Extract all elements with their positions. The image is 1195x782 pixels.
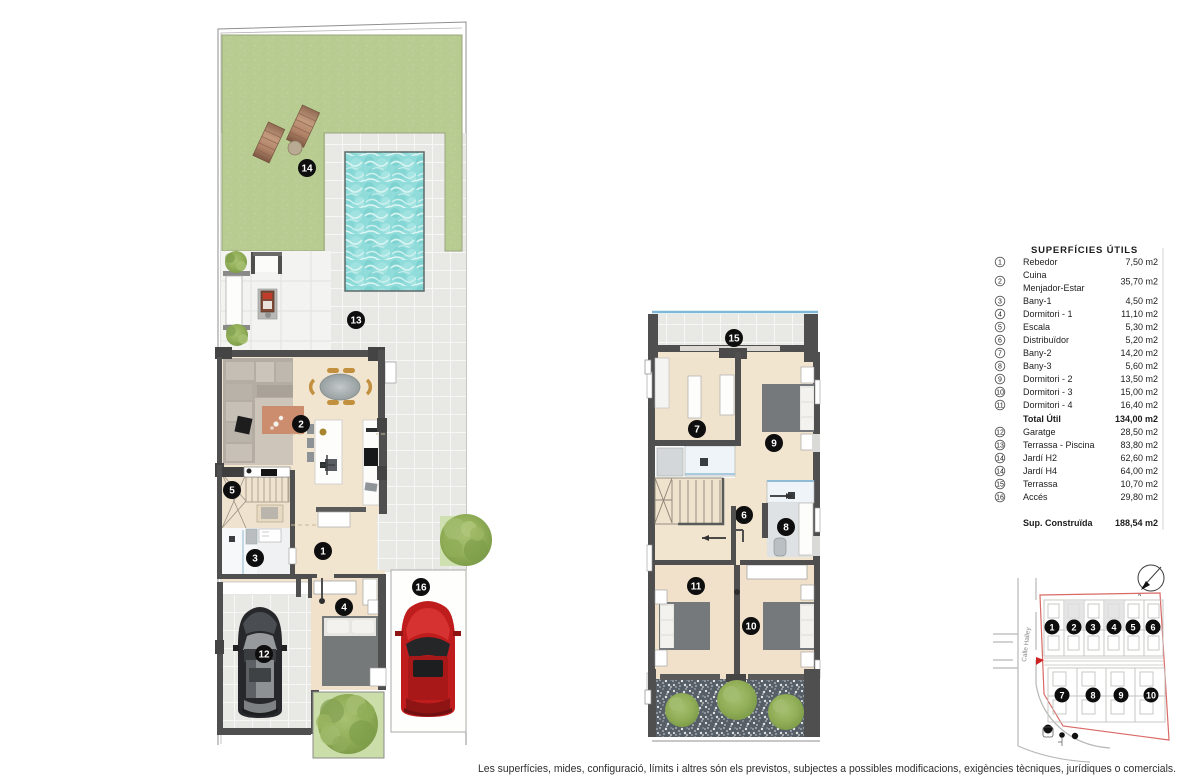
svg-text:Jardí H4: Jardí H4 <box>1023 466 1057 476</box>
svg-text:Menjador-Estar: Menjador-Estar <box>1023 283 1085 293</box>
svg-text:3: 3 <box>252 554 258 565</box>
svg-text:3: 3 <box>998 299 1002 306</box>
svg-text:7: 7 <box>998 351 1002 358</box>
svg-text:5,60 m2: 5,60 m2 <box>1125 361 1158 371</box>
svg-text:SUPERFÍCIES ÚTILS: SUPERFÍCIES ÚTILS <box>1031 244 1138 256</box>
svg-text:9: 9 <box>998 377 1002 384</box>
svg-text:Dormitori - 2: Dormitori - 2 <box>1023 374 1073 384</box>
svg-text:Jardí H2: Jardí H2 <box>1023 453 1057 463</box>
svg-text:14: 14 <box>996 469 1004 476</box>
svg-text:Total Útil: Total Útil <box>1023 413 1061 424</box>
svg-text:1: 1 <box>998 260 1002 267</box>
svg-text:11: 11 <box>691 582 702 593</box>
svg-text:64,00 m2: 64,00 m2 <box>1120 466 1158 476</box>
svg-text:28,50 m2: 28,50 m2 <box>1120 427 1158 437</box>
svg-text:Dormitori - 4: Dormitori - 4 <box>1023 400 1073 410</box>
svg-text:15,00 m2: 15,00 m2 <box>1120 387 1158 397</box>
svg-text:4: 4 <box>998 312 1002 319</box>
svg-text:Cuina: Cuina <box>1023 270 1047 280</box>
svg-text:15: 15 <box>996 482 1004 489</box>
svg-text:1: 1 <box>1049 623 1054 633</box>
svg-text:5,20 m2: 5,20 m2 <box>1125 335 1158 345</box>
svg-text:4: 4 <box>1111 623 1116 633</box>
svg-text:1: 1 <box>320 547 326 558</box>
svg-text:Sup. Construïda: Sup. Construïda <box>1023 518 1093 528</box>
svg-text:Calle Halley: Calle Halley <box>1021 626 1032 662</box>
svg-text:2: 2 <box>998 279 1002 286</box>
svg-text:Terrassa: Terrassa <box>1023 479 1058 489</box>
svg-text:14: 14 <box>996 456 1004 463</box>
svg-text:6: 6 <box>1150 623 1155 633</box>
svg-text:14,20 m2: 14,20 m2 <box>1120 348 1158 358</box>
svg-text:10,70 m2: 10,70 m2 <box>1120 479 1158 489</box>
svg-text:35,70 m2: 35,70 m2 <box>1120 277 1158 287</box>
svg-text:Garatge: Garatge <box>1023 427 1056 437</box>
svg-text:15: 15 <box>728 334 740 345</box>
svg-text:12: 12 <box>996 430 1004 437</box>
svg-text:13,50 m2: 13,50 m2 <box>1120 374 1158 384</box>
svg-text:83,80 m2: 83,80 m2 <box>1120 440 1158 450</box>
svg-text:13: 13 <box>350 316 362 327</box>
svg-text:Dormitori - 1: Dormitori - 1 <box>1023 309 1073 319</box>
svg-text:8: 8 <box>1090 691 1095 701</box>
svg-text:10: 10 <box>745 622 757 633</box>
svg-text:4,50 m2: 4,50 m2 <box>1125 296 1158 306</box>
svg-text:Bany-1: Bany-1 <box>1023 296 1052 306</box>
svg-text:Les superfícies, mides, config: Les superfícies, mides, configuració, lí… <box>478 763 1176 775</box>
svg-text:12: 12 <box>258 650 270 661</box>
svg-text:16: 16 <box>415 583 427 594</box>
svg-text:7,50 m2: 7,50 m2 <box>1125 257 1158 267</box>
svg-text:Rebedor: Rebedor <box>1023 257 1058 267</box>
svg-text:5,30 m2: 5,30 m2 <box>1125 322 1158 332</box>
svg-text:10: 10 <box>996 390 1004 397</box>
svg-text:Terrassa - Piscina: Terrassa - Piscina <box>1023 440 1095 450</box>
svg-text:6: 6 <box>998 338 1002 345</box>
svg-text:6: 6 <box>741 511 747 522</box>
svg-text:Distribuïdor: Distribuïdor <box>1023 335 1069 345</box>
svg-text:8: 8 <box>998 364 1002 371</box>
svg-text:62,60 m2: 62,60 m2 <box>1120 453 1158 463</box>
svg-text:Dormitori - 3: Dormitori - 3 <box>1023 387 1073 397</box>
svg-text:10: 10 <box>1146 691 1156 701</box>
svg-text:134,00 m2: 134,00 m2 <box>1115 414 1158 424</box>
svg-text:Bany-3: Bany-3 <box>1023 361 1052 371</box>
svg-text:Bany-2: Bany-2 <box>1023 348 1052 358</box>
svg-text:2: 2 <box>298 420 304 431</box>
svg-text:11: 11 <box>996 403 1003 410</box>
svg-text:7: 7 <box>694 425 700 436</box>
svg-text:5: 5 <box>229 486 235 497</box>
svg-text:5: 5 <box>1130 623 1135 633</box>
svg-text:29,80 m2: 29,80 m2 <box>1120 492 1158 502</box>
svg-text:8: 8 <box>783 523 789 534</box>
svg-text:4: 4 <box>341 603 347 614</box>
svg-text:3: 3 <box>1090 623 1095 633</box>
svg-text:Escala: Escala <box>1023 322 1050 332</box>
svg-text:188,54 m2: 188,54 m2 <box>1115 518 1158 528</box>
svg-text:16: 16 <box>996 495 1004 502</box>
svg-text:9: 9 <box>1118 691 1123 701</box>
svg-text:16,40 m2: 16,40 m2 <box>1120 400 1158 410</box>
svg-text:14: 14 <box>301 164 313 175</box>
svg-text:2: 2 <box>1071 623 1076 633</box>
svg-text:13: 13 <box>996 443 1004 450</box>
svg-text:9: 9 <box>771 439 777 450</box>
svg-text:7: 7 <box>1059 691 1064 701</box>
svg-text:11,10 m2: 11,10 m2 <box>1121 309 1158 319</box>
svg-text:5: 5 <box>998 325 1002 332</box>
svg-text:Accés: Accés <box>1023 492 1048 502</box>
